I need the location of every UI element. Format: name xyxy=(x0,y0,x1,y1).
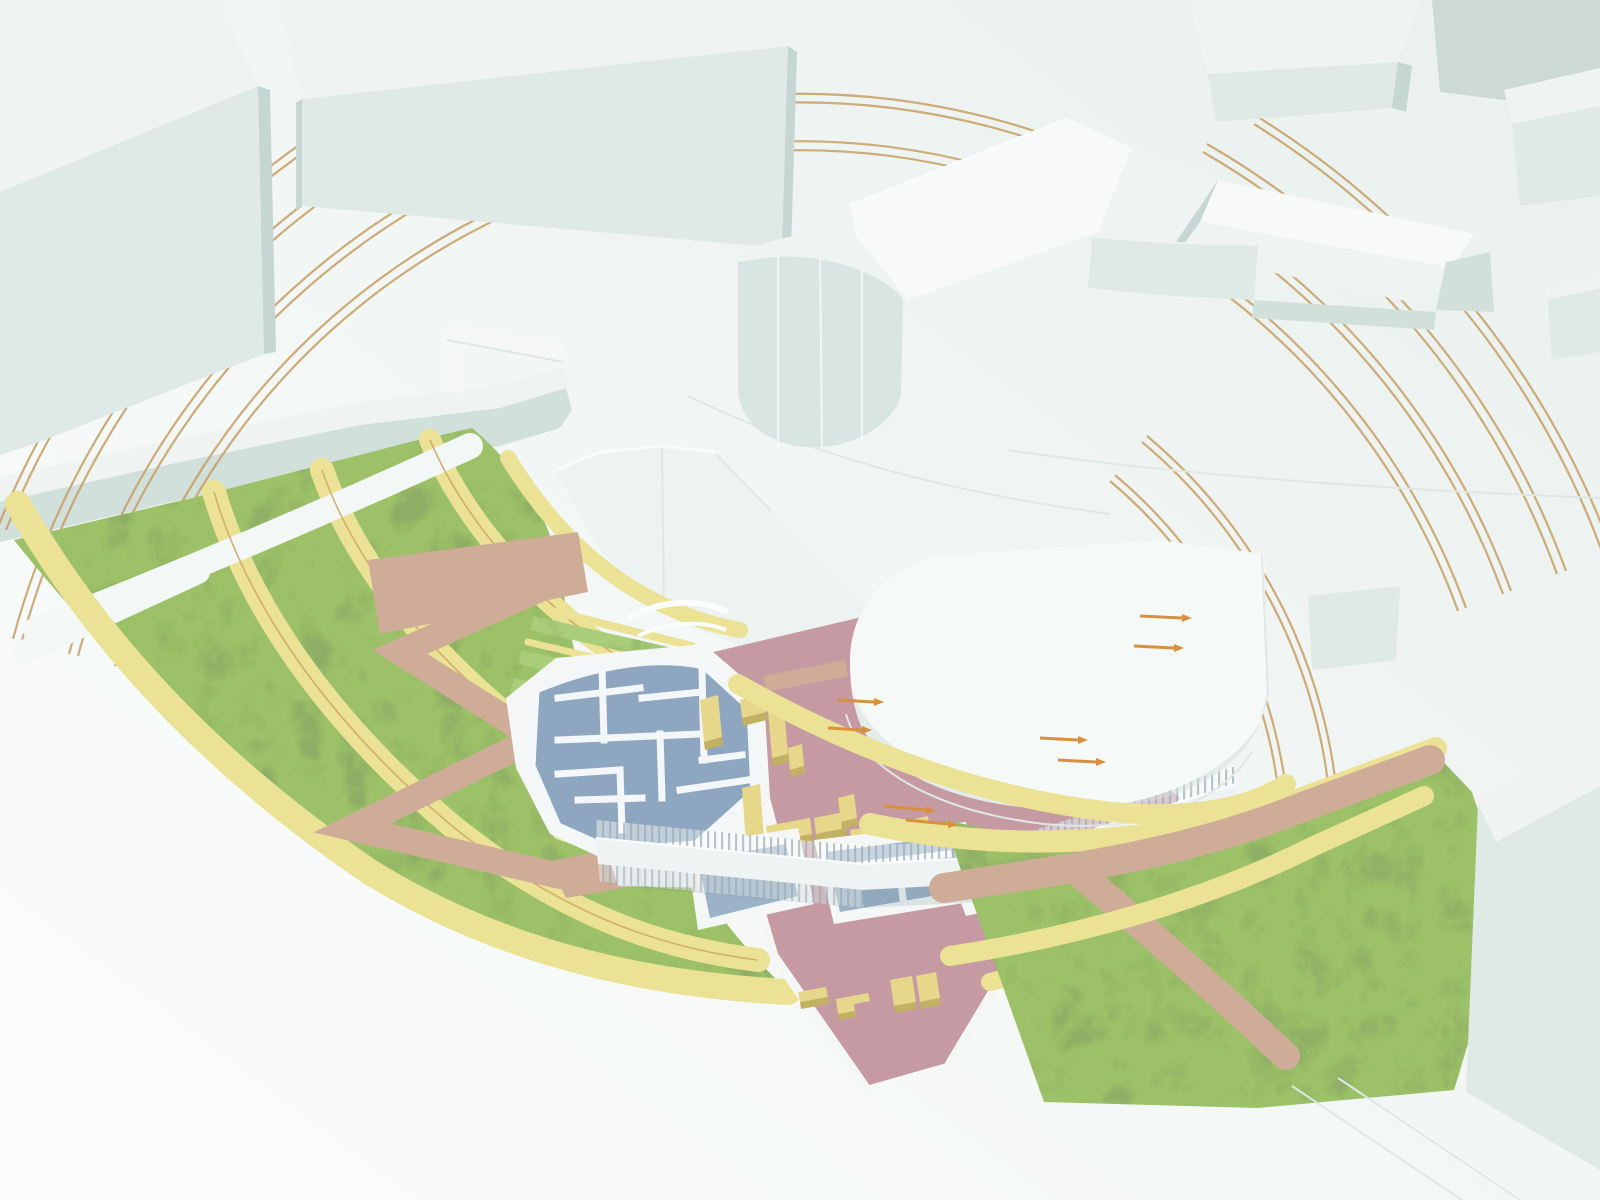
sliver-facade xyxy=(1548,288,1600,360)
block-side xyxy=(296,99,302,210)
ruin-wall xyxy=(660,734,662,798)
flow-arrow xyxy=(1134,646,1174,648)
ruin-wall xyxy=(578,798,642,800)
ruin-wall xyxy=(702,755,742,760)
flow-arrow xyxy=(828,728,862,730)
site-model-canvas xyxy=(0,0,1600,1200)
cube-facade xyxy=(1308,586,1400,670)
annex-wall xyxy=(1088,238,1176,296)
hall-front-wall xyxy=(1172,244,1258,300)
site-model-render xyxy=(0,0,1600,1200)
block-top xyxy=(838,794,857,822)
bench-top xyxy=(916,972,940,1002)
flow-arrow xyxy=(1140,616,1182,618)
ruin-wall xyxy=(558,770,620,774)
block-top xyxy=(788,744,804,770)
flow-arrow xyxy=(838,700,874,702)
flow-arrow xyxy=(1040,738,1078,740)
flow-arrow xyxy=(1058,760,1096,762)
bench-top xyxy=(890,976,916,1006)
ruin-wall xyxy=(602,668,604,740)
